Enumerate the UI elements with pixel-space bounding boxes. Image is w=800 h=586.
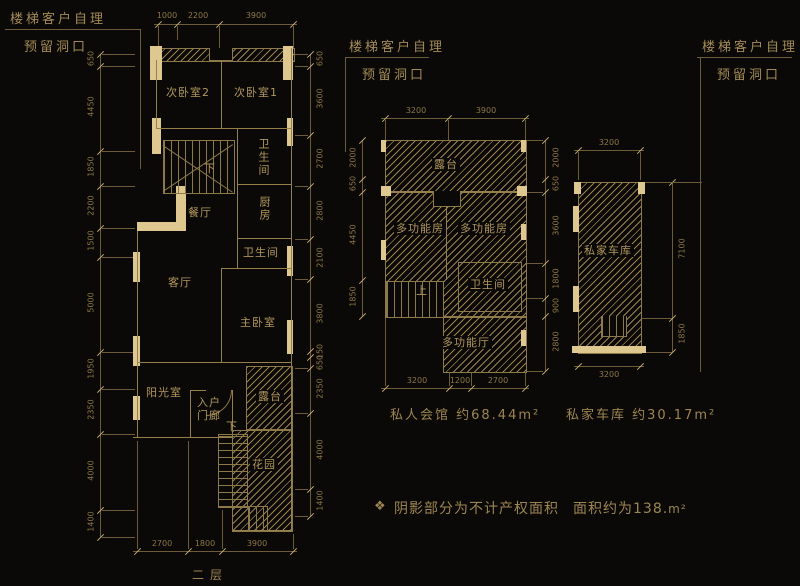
garage-caption: 私家车库 约30.17m² [566, 404, 716, 423]
dim-ext-line [102, 352, 135, 353]
dim-ext-line [385, 120, 386, 140]
room-label-kitchen: 厨房 [258, 196, 271, 222]
dim-label: 650 [552, 164, 561, 204]
floor-plan-canvas: 楼梯客户自理 预留洞口 楼梯客户自理 预留洞口 楼梯客户自理 预留洞口 1000… [0, 0, 800, 586]
room-label-garage: 私家车库 [582, 244, 634, 257]
annotation-underline [345, 57, 429, 58]
dim-ext-line [102, 54, 135, 55]
dim-label: 3600 [316, 79, 325, 119]
dim-line [310, 54, 311, 516]
dim-ext-line [295, 54, 308, 55]
dim-tick [359, 313, 366, 320]
room-label-bedroom2: 次卧室2 [166, 86, 210, 99]
dim-label: 1400 [316, 481, 325, 521]
dim-line [574, 150, 644, 151]
dim-ext-line [102, 510, 135, 511]
dim-line [362, 140, 363, 316]
dim-label: 2700 [478, 376, 518, 385]
dim-label: 1200 [440, 376, 480, 385]
room-label-dining: 餐厅 [188, 206, 212, 219]
dim-ext-line [177, 26, 178, 40]
dim-label: 3900 [236, 11, 276, 20]
wall-pier [381, 140, 386, 152]
room-label-master: 主卧室 [240, 316, 276, 329]
note-text: 阴影部分为不计产权面积面积约为138.m² [394, 498, 687, 518]
dim-ext-line [295, 368, 308, 369]
annotation-left-line2: 预留洞口 [24, 36, 88, 55]
dim-label: 1850 [678, 314, 687, 354]
dim-label: 2200 [87, 186, 96, 226]
room-label-porch: 入户门廊 [197, 396, 221, 422]
dim-ext-line [219, 26, 220, 48]
dim-ext-line [102, 228, 135, 229]
wall-pier [574, 182, 581, 194]
dim-ext-line [640, 152, 641, 180]
dim-ext-line [527, 192, 543, 193]
dim-ext-line [295, 66, 308, 67]
dim-ext-line [448, 120, 449, 140]
wall-pier [572, 346, 646, 353]
dim-label: 1850 [349, 277, 358, 317]
wall-pier [521, 140, 526, 152]
dim-ext-line [295, 516, 308, 517]
wall-pier [638, 182, 645, 194]
dim-ext-line [295, 239, 308, 240]
wall-pier [517, 186, 527, 196]
dim-label: 3200 [589, 138, 629, 147]
room-label-bedroom1: 次卧室1 [234, 86, 278, 99]
wall-line [446, 206, 447, 280]
dim-label: 5000 [87, 283, 96, 323]
wall-line [137, 362, 292, 363]
wall-line [156, 60, 157, 128]
dim-label: 4450 [87, 87, 96, 127]
dim-label: 1800 [185, 539, 225, 548]
annotation-underline [697, 57, 792, 58]
annotation-middle-line2: 预留洞口 [362, 64, 426, 83]
dim-label: 3900 [237, 539, 277, 548]
wall-line [221, 268, 222, 362]
dim-label: 3200 [397, 376, 437, 385]
wall-pier [521, 224, 526, 240]
dim-ext-line [642, 182, 702, 183]
dim-label: 650 [316, 39, 325, 79]
wall-line [237, 128, 238, 268]
wall-line [237, 184, 291, 185]
dim-ext-line [158, 26, 159, 48]
dim-ext-line [188, 441, 189, 549]
room-label-bath-upper: 卫生间 [257, 138, 270, 177]
stair-small [248, 506, 268, 532]
dim-label: 3200 [589, 370, 629, 379]
dim-ext-line [385, 318, 386, 386]
room-label-bath-mid: 卫生间 [243, 246, 279, 259]
room-label-club-hall: 多功能厅 [440, 336, 492, 349]
dim-ext-line [102, 257, 135, 258]
wall-pier [521, 330, 526, 346]
dim-ext-line [295, 186, 308, 187]
wall-line [156, 128, 292, 129]
dim-label: 3600 [552, 206, 561, 246]
wall-line [133, 437, 190, 438]
dim-label: 4450 [349, 215, 358, 255]
stair-direction-label: 下 [226, 420, 238, 433]
dim-line [100, 54, 101, 537]
room-label-club-terrace: 露台 [432, 158, 460, 171]
wall-line [221, 60, 222, 128]
room-label-sunroom: 阳光室 [146, 386, 182, 399]
dim-ext-line [102, 151, 135, 152]
wall-pier [381, 240, 386, 260]
wall-line [291, 48, 292, 362]
dim-label: 2700 [142, 539, 182, 548]
dim-label: 4000 [87, 451, 96, 491]
dim-ext-line [137, 441, 138, 549]
wall-line [190, 390, 191, 437]
annotation-underline [5, 29, 140, 30]
dim-label: 1950 [87, 349, 96, 389]
dim-label: 1400 [87, 502, 96, 542]
dim-ext-line [102, 537, 135, 538]
room-label-terrace: 露台 [256, 390, 284, 403]
dim-label: 2100 [316, 238, 325, 278]
dim-label: 2200 [178, 11, 218, 20]
dim-line [545, 140, 546, 371]
annotation-right-line2: 预留洞口 [717, 64, 781, 83]
dim-label: 650 [349, 164, 358, 204]
dim-ext-line [102, 186, 135, 187]
stair-direction-label: 下 [204, 162, 216, 175]
annotation-left-line1: 楼梯客户自理 [10, 8, 106, 27]
stair-lower [218, 434, 248, 508]
wall-pier [573, 286, 579, 312]
dim-tick [542, 368, 549, 375]
dim-ext-line [102, 389, 135, 390]
dim-ext-line [527, 140, 543, 141]
room-label-living: 客厅 [168, 276, 192, 289]
dim-ext-line [295, 135, 308, 136]
dim-line [672, 182, 673, 352]
stair-club [386, 281, 444, 318]
note-marker: ❖ [374, 499, 387, 514]
dim-line [381, 118, 529, 119]
dim-label: 7100 [678, 229, 687, 269]
annotation-leader-line [700, 57, 701, 372]
dim-label: 2800 [316, 191, 325, 231]
dim-label: 3200 [396, 106, 436, 115]
room-label-multi1: 多功能房 [394, 222, 446, 235]
wall-pier [287, 246, 293, 276]
dim-ext-line [102, 434, 135, 435]
dim-ext-line [293, 26, 294, 48]
dim-tick [307, 513, 314, 520]
room-label-club-bath: 卫生间 [468, 278, 508, 291]
dim-line [381, 388, 529, 389]
dim-label: 1850 [87, 147, 96, 187]
annotation-right-line1: 楼梯客户自理 [702, 36, 798, 55]
dim-ext-line [578, 152, 579, 180]
dim-ext-line [295, 413, 308, 414]
wall-pier [573, 206, 579, 232]
room-label-garden: 花园 [250, 458, 278, 471]
wall-pier [287, 320, 293, 354]
room-label-multi2: 多功能房 [458, 222, 510, 235]
note-unit: m² [668, 502, 687, 516]
club-caption: 私人会馆 约68.44m² [390, 404, 540, 423]
dim-line [133, 551, 297, 552]
note-area: 面积约为138. [573, 501, 668, 517]
wall-pier [381, 186, 391, 196]
floor2-caption: 二层 [192, 566, 228, 583]
wall-line [137, 231, 138, 362]
dim-ext-line [295, 279, 308, 280]
dim-ext-line [527, 371, 543, 372]
wall-notch [433, 191, 461, 207]
dim-ext-line [642, 318, 672, 319]
dim-label: 4000 [316, 430, 325, 470]
wall-line [137, 362, 138, 437]
note-body: 阴影部分为不计产权面积 [394, 501, 559, 517]
dim-label: 650 [87, 39, 96, 79]
wall-pier [287, 118, 293, 146]
annotation-middle-line1: 楼梯客户自理 [349, 36, 445, 55]
dim-ext-line [295, 489, 308, 490]
dim-label: 2800 [552, 322, 561, 362]
annotation-leader-line [140, 29, 141, 169]
dim-label: 3800 [316, 294, 325, 334]
dim-label: 900 [552, 286, 561, 326]
wall-line [190, 390, 206, 391]
dim-ext-line [527, 298, 543, 299]
dim-label: 2350 [87, 390, 96, 430]
dim-label: 3900 [466, 106, 506, 115]
dim-label: 2700 [316, 139, 325, 179]
dim-line [574, 366, 644, 367]
dim-label: 2350 [316, 369, 325, 409]
annotation-leader-line [345, 57, 346, 152]
wall-pier [137, 222, 186, 231]
wall-line [221, 268, 291, 269]
dim-ext-line [525, 120, 526, 140]
dim-ext-line [293, 534, 294, 549]
stair-direction-label: 上 [416, 284, 428, 297]
dim-ext-line [102, 66, 135, 67]
wall-line [237, 238, 291, 239]
dim-ext-line [525, 373, 526, 386]
dim-ext-line [646, 352, 672, 353]
dim-ext-line [527, 263, 543, 264]
dim-label: 1500 [87, 221, 96, 261]
stair-garage [601, 316, 627, 337]
